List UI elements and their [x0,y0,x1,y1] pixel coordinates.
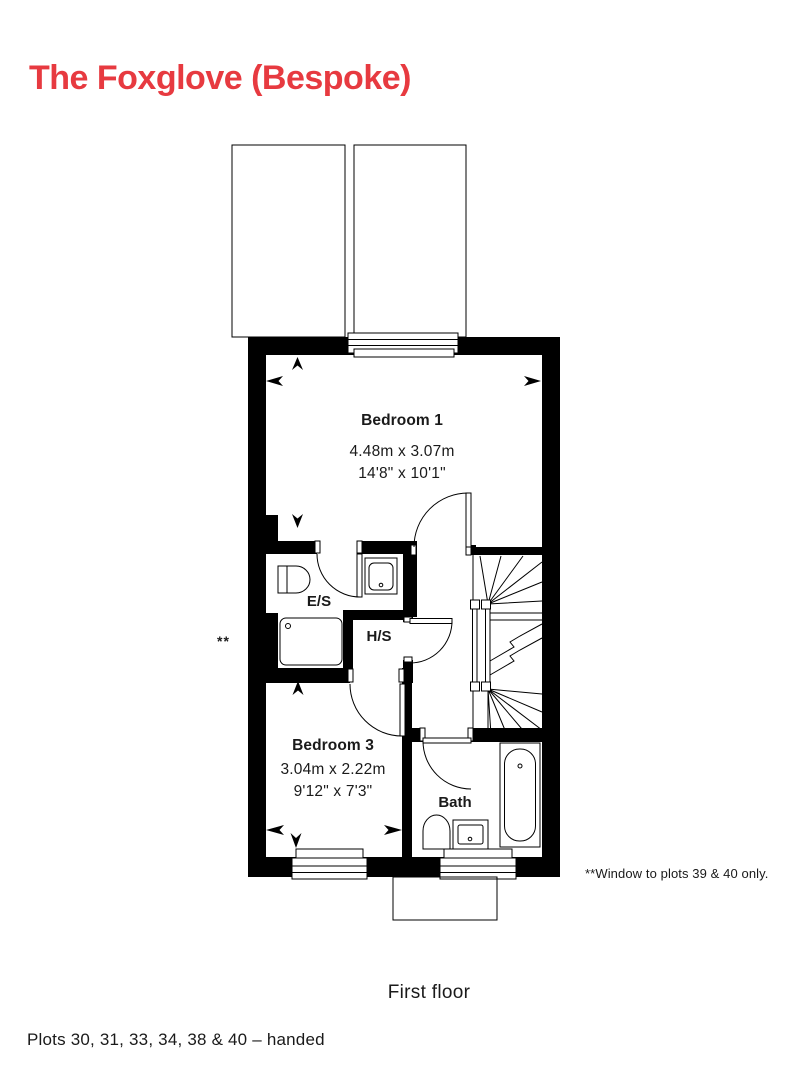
porch-outline [393,877,497,920]
plots-note: Plots 30, 31, 33, 34, 38 & 40 – handed [27,1030,325,1050]
arrow-right-icon [524,376,541,386]
ensuite-toilet-icon [278,566,310,593]
floor-plan [0,0,800,1075]
bedroom1-label: Bedroom 1 [302,412,502,430]
bedroom3-metric-dimensions: 3.04m x 2.22m [233,761,433,779]
ensuite-sink-icon [365,558,397,594]
bedroom1-door [414,493,471,547]
bathroom-toilet-icon [423,815,450,849]
bathroom-sink-icon [453,820,488,849]
dormer-outlines [232,145,466,337]
bedroom1-window-icon [348,333,458,357]
arrow-down-icon [291,833,302,848]
bedroom3-label: Bedroom 3 [233,737,433,755]
ensuite-label: E/S [289,593,349,610]
staircase [471,555,543,735]
bedroom3-window-icon [292,849,367,879]
arrow-up-icon [292,357,303,370]
arrow-down-icon [292,514,303,528]
arrow-left-icon [266,376,283,386]
bathtub-icon [500,743,540,847]
bedroom1-imperial-dimensions: 14'8" x 10'1" [302,465,502,483]
arrow-left-icon [266,825,284,835]
bedroom3-door [350,684,405,736]
window-note-marker: ** [217,633,230,649]
shower-tray-icon [280,618,342,665]
bedroom1-metric-dimensions: 4.48m x 3.07m [302,443,502,461]
ensuite-door [317,554,362,597]
page-title: The Foxglove (Bespoke) [29,59,629,98]
hotpress-label: H/S [349,628,409,645]
window-footnote: **Window to plots 39 & 40 only. [585,866,769,881]
bath-label: Bath [425,794,485,811]
floor-caption: First floor [329,982,529,1004]
arrow-right-icon [384,825,402,835]
bathroom-window-icon [440,849,516,879]
bedroom3-imperial-dimensions: 9'12" x 7'3" [233,783,433,801]
hotpress-door [410,619,452,664]
arrow-up-icon [293,681,304,695]
